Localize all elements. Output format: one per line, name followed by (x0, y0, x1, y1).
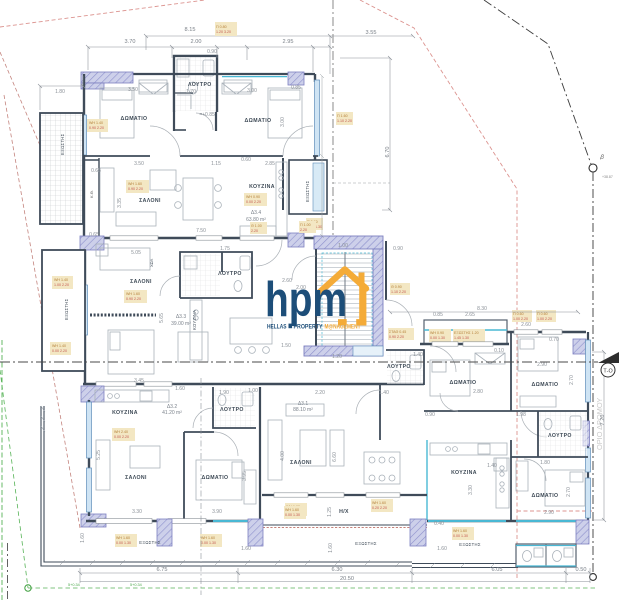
svg-text:WH 1.60: WH 1.60 (201, 536, 215, 540)
svg-text:1.15: 1.15 (211, 161, 221, 167)
svg-text:5.25: 5.25 (96, 450, 102, 460)
svg-text:ΣΑΛΟΝΙ: ΣΑΛΟΝΙ (139, 198, 161, 204)
svg-text:2.20: 2.20 (251, 229, 258, 233)
svg-text:0.00 1.30: 0.00 1.30 (201, 541, 216, 545)
svg-text:1.00 2.20: 1.00 2.20 (537, 317, 552, 321)
svg-text:3.50: 3.50 (134, 161, 144, 167)
svg-text:HELLAS: HELLAS (267, 323, 287, 330)
svg-text:2.20: 2.20 (315, 390, 325, 396)
svg-text:ΔΩΜΑΤΙΟ: ΔΩΜΑΤΙΟ (202, 475, 229, 481)
svg-text:ΚΟΥΖΙΝΑ: ΚΟΥΖΙΝΑ (112, 410, 138, 416)
svg-text:ΧΩΛ: ΧΩΛ (149, 258, 154, 267)
svg-text:Τ-Ο: Τ-Ο (603, 369, 612, 375)
svg-text:0.90 2.20: 0.90 2.20 (389, 335, 404, 339)
svg-text:1.20 3.20: 1.20 3.20 (216, 30, 231, 34)
svg-text:Θ 1.00: Θ 1.00 (251, 224, 262, 228)
svg-text:5+0.34: 5+0.34 (130, 583, 142, 587)
svg-text:0.20 2.20: 0.20 2.20 (372, 506, 387, 510)
svg-text:ΛΟΥΤΡΟ: ΛΟΥΤΡΟ (387, 364, 411, 370)
svg-text:2.90: 2.90 (537, 362, 547, 368)
svg-text:ΚΟΥΖΙΝΑ: ΚΟΥΖΙΝΑ (249, 184, 275, 190)
svg-text:0.90 2.20: 0.90 2.20 (126, 297, 141, 301)
svg-text:ΕΞΩΣΤΗΣ: ΕΞΩΣΤΗΣ (355, 541, 377, 546)
svg-text:1.00 2.20: 1.00 2.20 (513, 317, 528, 321)
svg-text:WH 1.40: WH 1.40 (54, 278, 68, 282)
svg-text:ΔΩΜΑΤΙΟ: ΔΩΜΑΤΙΟ (245, 118, 272, 124)
svg-text:3.30: 3.30 (468, 485, 474, 495)
svg-text:ΚΟΥΖΙΝΑ: ΚΟΥΖΙΝΑ (192, 310, 197, 330)
svg-text:Δ3.3: Δ3.3 (176, 314, 187, 320)
svg-text:+38.87: +38.87 (602, 175, 613, 179)
svg-text:0.00 1.30: 0.00 1.30 (285, 513, 300, 517)
svg-text:6.05: 6.05 (492, 567, 503, 573)
svg-text:1.20: 1.20 (332, 354, 342, 360)
svg-text:WH 0.90: WH 0.90 (430, 331, 444, 335)
svg-text:0.85: 0.85 (433, 312, 443, 318)
svg-text:PROPERTY: PROPERTY (294, 323, 324, 330)
svg-text:hpm: hpm (265, 273, 347, 327)
svg-text:WH 1.60: WH 1.60 (128, 182, 142, 186)
svg-text:ΣΤΑΘ 0.45: ΣΤΑΘ 0.45 (389, 330, 406, 334)
svg-text:2.95: 2.95 (283, 39, 294, 45)
svg-text:0.90 2.20: 0.90 2.20 (89, 126, 104, 130)
svg-text:2.85: 2.85 (265, 161, 275, 167)
svg-text:3.45: 3.45 (134, 378, 144, 384)
svg-text:8.30: 8.30 (477, 306, 487, 312)
svg-text:Π 1.00: Π 1.00 (300, 223, 311, 227)
svg-text:3.50: 3.50 (128, 87, 138, 93)
svg-text:1.75: 1.75 (220, 246, 230, 252)
svg-text:1.45 1.30: 1.45 1.30 (454, 336, 469, 340)
svg-text:0.60: 0.60 (241, 157, 251, 163)
svg-text:1.10 2.20: 1.10 2.20 (337, 119, 352, 123)
svg-text:0.90: 0.90 (207, 49, 217, 55)
svg-text:1.98: 1.98 (516, 412, 526, 418)
svg-text:4.00: 4.00 (280, 451, 286, 461)
svg-text:M@NAGEMENT: M@NAGEMENT (325, 323, 361, 330)
svg-text:WH 1.60: WH 1.60 (116, 536, 130, 540)
svg-text:3.00: 3.00 (247, 88, 257, 94)
svg-text:41.20 m²: 41.20 m² (162, 410, 182, 416)
svg-text:88.10 m²: 88.10 m² (293, 407, 313, 413)
svg-text:Π 1.60: Π 1.60 (337, 114, 348, 118)
svg-text:2.70: 2.70 (569, 375, 575, 385)
svg-text:3.55: 3.55 (366, 30, 377, 36)
svg-text:6.30: 6.30 (332, 567, 343, 573)
svg-text:Θ 0.90: Θ 0.90 (391, 285, 402, 289)
svg-text:Κ.Θ.: Κ.Θ. (89, 190, 94, 198)
svg-text:ΛΟΥΤΡΟ: ΛΟΥΤΡΟ (548, 433, 572, 439)
svg-text:0.00 2.20: 0.00 2.20 (52, 349, 67, 353)
svg-text:0.00 1.30: 0.00 1.30 (453, 534, 468, 538)
svg-text:ΣΑΛΟΝΙ: ΣΑΛΟΝΙ (290, 460, 312, 466)
svg-text:WH 1.60: WH 1.60 (126, 292, 140, 296)
svg-text:0.85: 0.85 (291, 85, 301, 91)
svg-text:0.65: 0.65 (89, 232, 99, 238)
svg-text:2.60: 2.60 (521, 322, 531, 328)
svg-text:WH 1.40: WH 1.40 (89, 121, 103, 125)
svg-text:ΛΟΥΤΡΟ: ΛΟΥΤΡΟ (220, 407, 244, 413)
svg-text:7.50: 7.50 (196, 228, 206, 234)
svg-text:WH 1.60: WH 1.60 (453, 529, 467, 533)
svg-text:1.90: 1.90 (219, 390, 229, 396)
svg-text:1.80: 1.80 (55, 89, 65, 95)
svg-text:5+0.34: 5+0.34 (68, 583, 80, 587)
svg-text:Π 0.80: Π 0.80 (216, 25, 227, 29)
svg-text:=+0.85: =+0.85 (199, 112, 215, 118)
svg-text:1.50: 1.50 (281, 343, 291, 349)
svg-text:1.00 2.20: 1.00 2.20 (54, 283, 69, 287)
svg-text:6.75: 6.75 (157, 567, 168, 573)
svg-text:5.65: 5.65 (159, 313, 165, 323)
svg-text:6.60: 6.60 (332, 452, 338, 462)
svg-text:0.90: 0.90 (425, 412, 435, 418)
svg-text:Η/Χ: Η/Χ (339, 509, 349, 515)
svg-text:WH 2.40: WH 2.40 (114, 430, 128, 434)
svg-text:1.70: 1.70 (186, 89, 196, 95)
svg-text:8.15: 8.15 (185, 27, 196, 33)
svg-text:ΔΩΜΑΤΙΟ: ΔΩΜΑΤΙΟ (450, 380, 477, 386)
svg-text:1.25: 1.25 (327, 507, 333, 517)
svg-text:WH 0.90: WH 0.90 (246, 195, 260, 199)
svg-text:39.00 m²: 39.00 m² (171, 321, 191, 327)
svg-text:1.60: 1.60 (437, 546, 447, 552)
svg-text:ΔΩΜΑΤΙΟ: ΔΩΜΑΤΙΟ (532, 493, 559, 499)
svg-text:3.95: 3.95 (242, 471, 248, 481)
svg-text:WH 1.40: WH 1.40 (52, 344, 66, 348)
svg-text:ΛΟΥΤΡΟ: ΛΟΥΤΡΟ (188, 82, 212, 88)
svg-text:ΣΑΛΟΝΙ: ΣΑΛΟΝΙ (130, 279, 152, 285)
svg-text:2.80: 2.80 (473, 389, 483, 395)
svg-text:2.65: 2.65 (465, 312, 475, 318)
svg-text:0.50: 0.50 (576, 567, 587, 573)
svg-text:ΔΩΜΑΤΙΟ: ΔΩΜΑΤΙΟ (121, 116, 148, 122)
svg-text:5.05: 5.05 (131, 250, 141, 256)
svg-text:ΕΞΩΣΤΗΣ: ΕΞΩΣΤΗΣ (459, 542, 481, 547)
svg-text:ΔΩΜΑΤΙΟ: ΔΩΜΑΤΙΟ (532, 382, 559, 388)
svg-text:0.40: 0.40 (434, 521, 444, 527)
svg-text:1.00: 1.00 (338, 243, 348, 249)
svg-text:6.70: 6.70 (385, 147, 391, 158)
svg-text:0.90: 0.90 (393, 246, 403, 252)
svg-text:ΛΟΥΤΡΟ: ΛΟΥΤΡΟ (218, 271, 242, 277)
svg-text:0.00 1.30: 0.00 1.30 (116, 541, 131, 545)
svg-text:0.70: 0.70 (549, 337, 559, 343)
svg-text:7.20: 7.20 (600, 415, 606, 426)
svg-text:0.00 1.30: 0.00 1.30 (430, 336, 445, 340)
svg-text:ΕΞΩΣΤΗΣ: ΕΞΩΣΤΗΣ (60, 133, 65, 155)
svg-text:20.50: 20.50 (340, 576, 354, 582)
svg-text:ΕΞΩΣΤΗΣ 1.20: ΕΞΩΣΤΗΣ 1.20 (454, 331, 479, 335)
svg-text:1.80: 1.80 (540, 460, 550, 466)
svg-text:ΕΞΩΣΤΗΣ: ΕΞΩΣΤΗΣ (139, 540, 161, 545)
svg-text:1.40: 1.40 (413, 352, 423, 358)
svg-text:ΚΟΥΖΙΝΑ: ΚΟΥΖΙΝΑ (451, 470, 477, 476)
svg-text:2.70: 2.70 (566, 487, 572, 497)
svg-text:ΕΞΩΣΤΗΣ: ΕΞΩΣΤΗΣ (64, 298, 69, 320)
svg-text:0.00 2.20: 0.00 2.20 (114, 435, 129, 439)
svg-text:3.90: 3.90 (212, 509, 222, 515)
svg-text:ΣΑΛΟΝΙ: ΣΑΛΟΝΙ (125, 475, 147, 481)
svg-text:WH 1.60: WH 1.60 (285, 508, 299, 512)
svg-text:Π 0.60: Π 0.60 (537, 312, 548, 316)
svg-text:1.40: 1.40 (379, 390, 389, 396)
svg-text:1.60: 1.60 (175, 386, 185, 392)
svg-text:Π 0.60: Π 0.60 (513, 312, 524, 316)
svg-text:1.40: 1.40 (487, 463, 497, 469)
svg-text:Δ3.4: Δ3.4 (251, 210, 262, 216)
svg-text:3.35: 3.35 (117, 198, 123, 208)
svg-text:0.90 2.20: 0.90 2.20 (128, 187, 143, 191)
svg-text:3.30: 3.30 (132, 509, 142, 515)
svg-text:WH 1.60: WH 1.60 (372, 501, 386, 505)
svg-text:ΕΞΩΣΤΗΣ: ΕΞΩΣΤΗΣ (305, 180, 310, 202)
svg-text:3.00: 3.00 (280, 117, 286, 127)
svg-text:1.60: 1.60 (328, 543, 334, 553)
svg-text:2.00: 2.00 (191, 39, 202, 45)
svg-text:2.90: 2.90 (544, 510, 554, 516)
svg-text:0.65: 0.65 (91, 168, 101, 174)
svg-text:3.70: 3.70 (125, 39, 136, 45)
svg-text:1.60: 1.60 (241, 546, 251, 552)
svg-text:1.00: 1.00 (248, 388, 258, 394)
svg-text:0.00 2.20: 0.00 2.20 (246, 200, 261, 204)
svg-text:2.20: 2.20 (300, 228, 307, 232)
svg-text:0.10: 0.10 (494, 348, 504, 354)
svg-text:1.10 2.20: 1.10 2.20 (391, 290, 406, 294)
svg-text:1.60: 1.60 (80, 533, 86, 543)
